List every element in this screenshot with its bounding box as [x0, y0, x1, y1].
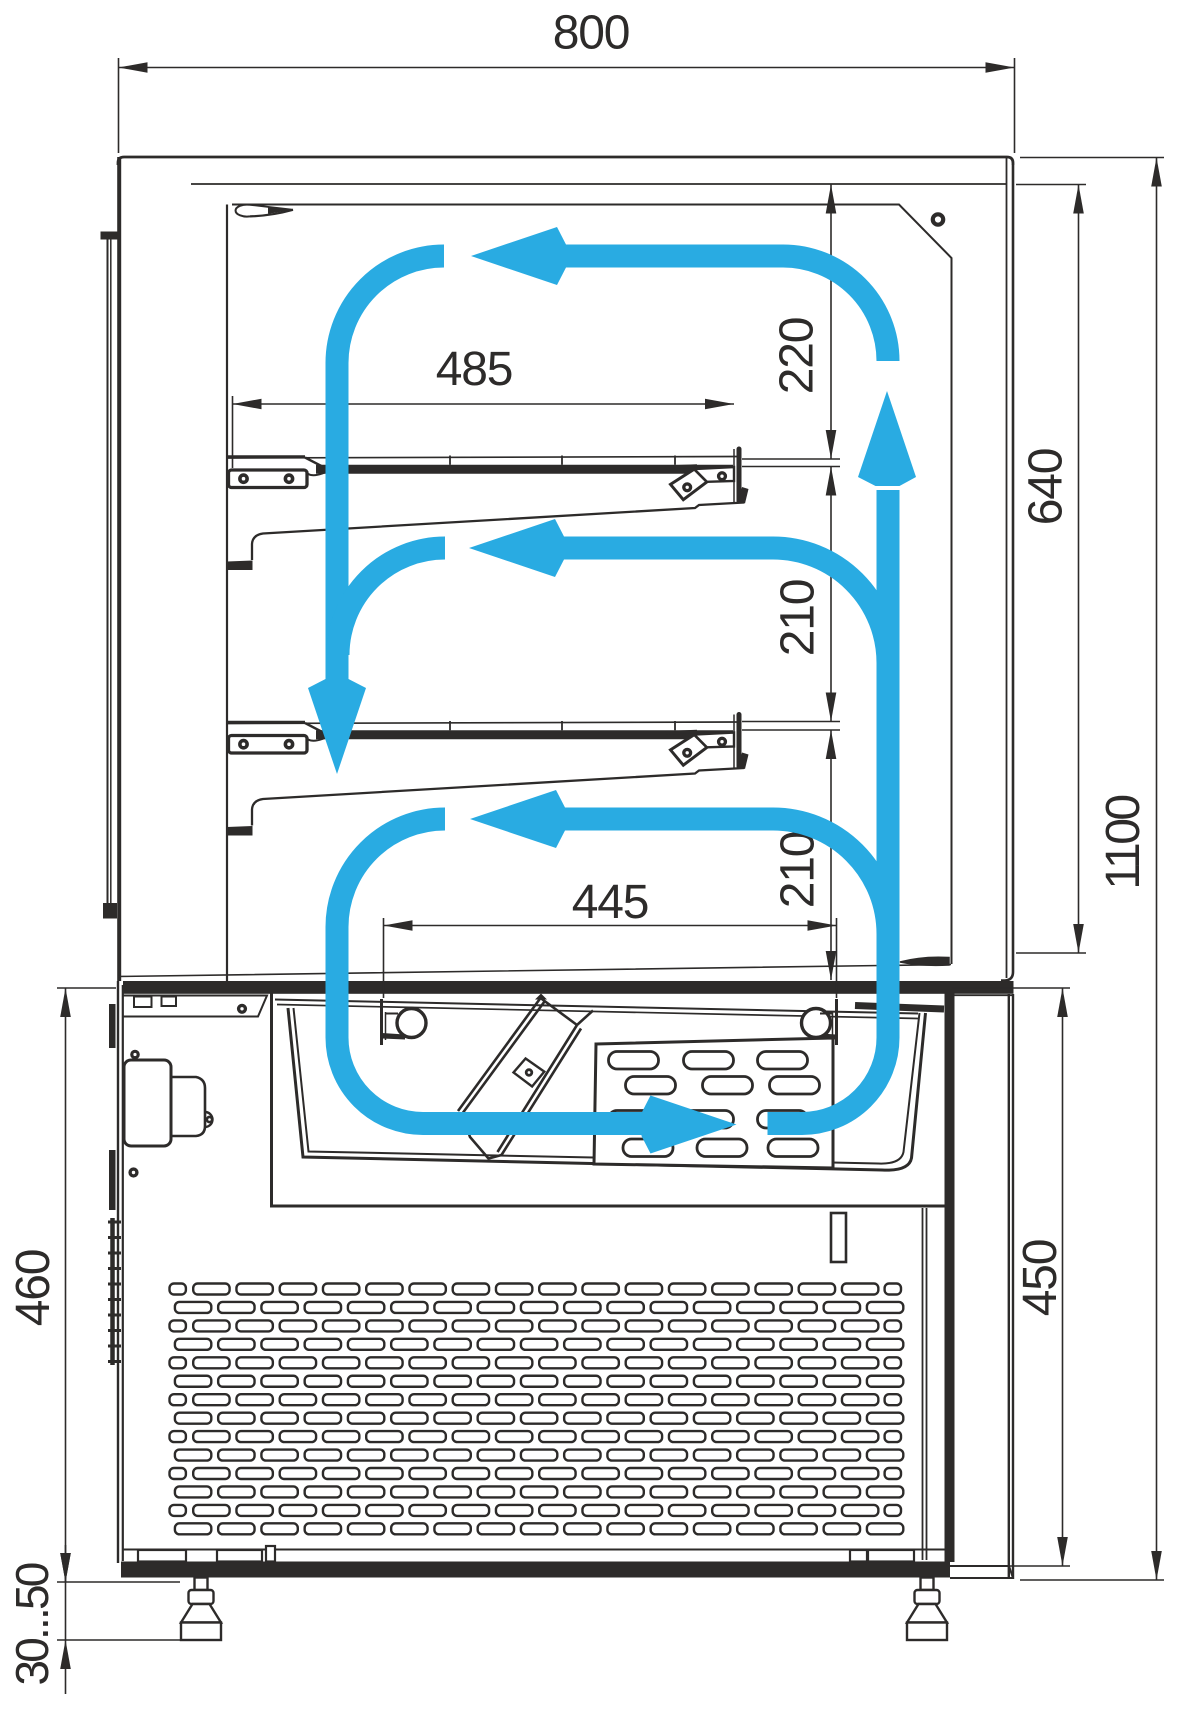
svg-text:1100: 1100 [1097, 796, 1150, 890]
svg-text:220: 220 [771, 318, 824, 395]
svg-text:445: 445 [572, 876, 649, 929]
svg-text:800: 800 [553, 7, 630, 60]
svg-text:450: 450 [1014, 1240, 1067, 1317]
svg-text:210: 210 [772, 832, 825, 909]
svg-text:640: 640 [1020, 449, 1073, 526]
svg-text:460: 460 [7, 1250, 60, 1327]
svg-text:30...50: 30...50 [6, 1563, 58, 1685]
svg-text:210: 210 [772, 580, 825, 657]
svg-text:485: 485 [436, 343, 513, 396]
